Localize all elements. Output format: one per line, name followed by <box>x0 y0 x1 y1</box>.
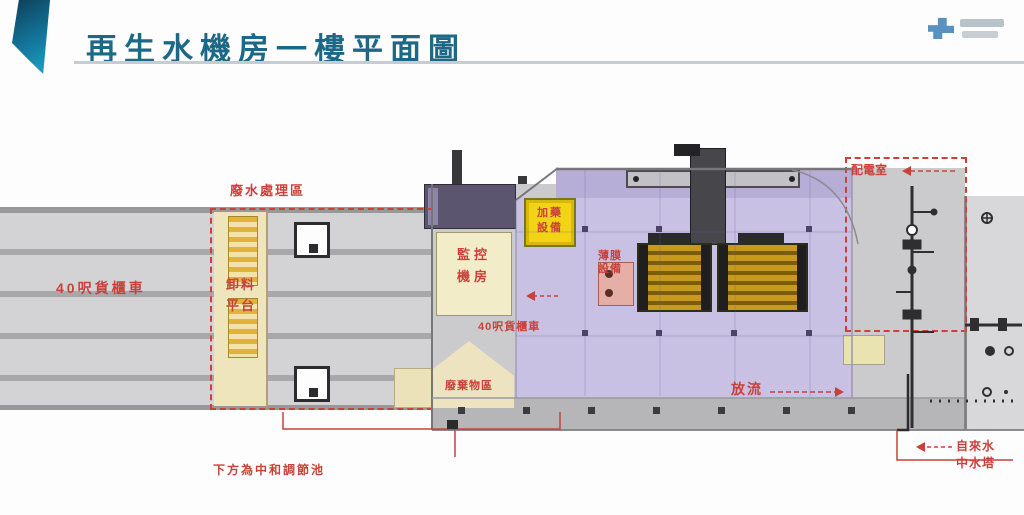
membrane-unit-1 <box>637 243 712 312</box>
label-power-room: 配電室 <box>851 161 887 178</box>
wall-pier <box>518 176 527 184</box>
membrane-unit-2 <box>717 243 808 312</box>
label-discharge: 放流 <box>731 379 763 399</box>
logo-text-placeholder <box>960 19 1004 27</box>
gantry-cap <box>674 144 700 156</box>
gantry-column <box>690 148 726 245</box>
unit-end-cap <box>719 245 728 310</box>
label-control-room: 監控 機房 <box>436 244 512 288</box>
pump-dot <box>605 289 613 297</box>
label-membrane-unit: 薄膜 設備 <box>588 250 632 276</box>
power-zone-outline <box>845 157 967 332</box>
small-room <box>843 335 885 365</box>
label-basement-tanks: 下方為中和調節池 <box>213 461 325 478</box>
equipment-rail <box>738 233 784 243</box>
logo-text-placeholder <box>962 31 998 38</box>
unit-end-cap <box>701 245 710 310</box>
company-logo-icon <box>928 15 954 39</box>
east-service-strip <box>965 196 1024 430</box>
wall-pier <box>452 150 462 184</box>
label-waste-room: 廢棄物區 <box>426 377 512 393</box>
equipment-rail <box>648 233 690 243</box>
corner-ribbon-icon <box>12 0 50 74</box>
header-divider <box>74 61 1024 64</box>
slide: 再生水機房一樓平面圖 <box>0 0 1024 515</box>
label-truck-road: 40呎貨櫃車 <box>56 278 146 298</box>
unit-end-cap <box>639 245 648 310</box>
unit-end-cap <box>797 245 806 310</box>
label-inner-road: 40呎貨櫃車 <box>478 318 540 334</box>
label-tap-water: 自來水 <box>956 437 995 454</box>
label-wastewater-zone: 廢水處理區 <box>230 180 305 199</box>
label-reclaimed-tower: 中水塔 <box>956 454 995 471</box>
label-unloading-bay: 卸料 平台 <box>214 274 268 316</box>
label-dosing-room: 加藥 設備 <box>524 206 576 236</box>
